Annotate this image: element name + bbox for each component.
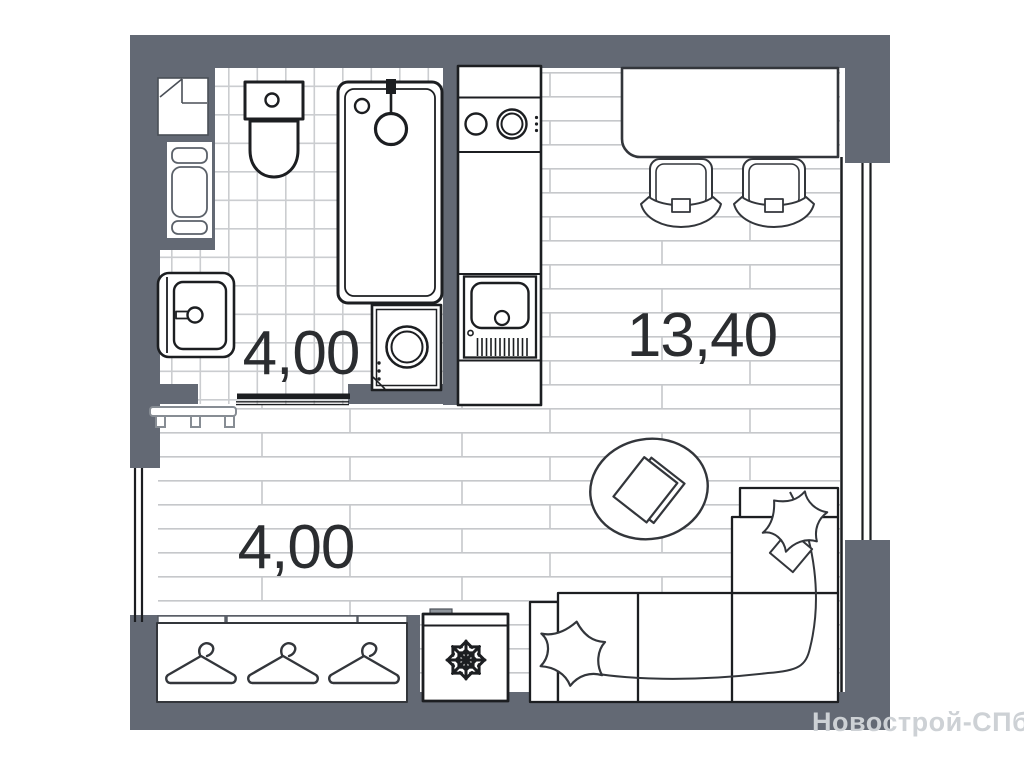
snowflake-icon: [447, 641, 485, 679]
bar-stool-left: [641, 159, 721, 227]
watermark: Новострой-СПб: [812, 707, 1024, 737]
bar-stool-right: [734, 159, 814, 227]
kitchen-counter: [458, 66, 541, 405]
area-label-bathroom: 4,00: [243, 319, 360, 388]
bathtub: [338, 79, 442, 303]
bar-table: [622, 68, 838, 157]
pipe-riser: [167, 142, 212, 238]
wardrobe: [157, 616, 407, 702]
toilet: [245, 82, 303, 177]
floor-plan: 4,00 13,40 4,00 Новострой-СПб: [0, 0, 1024, 767]
bathroom-sink: [158, 273, 234, 357]
floor-plan-canvas: 4,00 13,40 4,00 Новострой-СПб: [0, 0, 1024, 767]
fridge: [423, 609, 508, 701]
entrance-door: [135, 468, 142, 622]
area-label-living-kitchen: 13,40: [627, 301, 777, 370]
vent-shaft: [158, 78, 208, 135]
washing-machine: [372, 305, 441, 390]
area-label-hall: 4,00: [238, 513, 355, 582]
